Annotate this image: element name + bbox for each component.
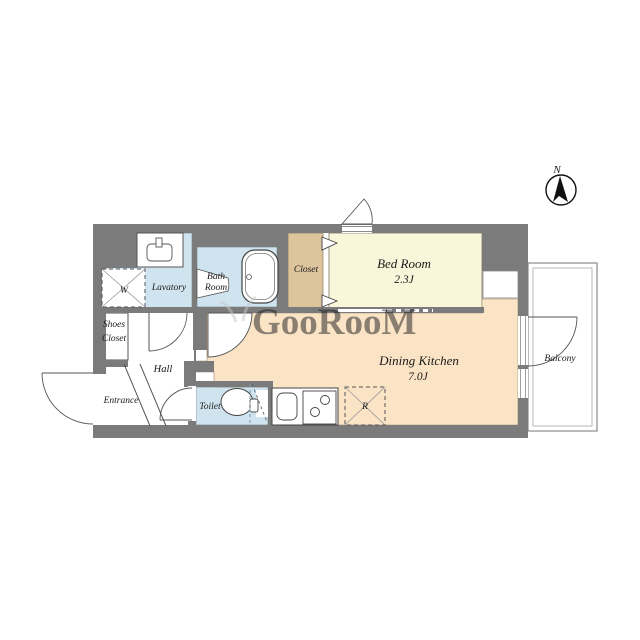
label-refrigerator: R (361, 402, 368, 412)
wall-toilet-north (184, 381, 273, 387)
compass-label: N (552, 164, 561, 176)
wall-hall-dk (193, 313, 207, 350)
wall-right-stub (518, 365, 528, 369)
wall-ne-chunk (482, 233, 528, 271)
balcony-door-opening (518, 316, 528, 365)
wall-bath-closet (277, 233, 288, 308)
toilet-tank-icon (250, 399, 258, 412)
wall-under-shoes (93, 360, 128, 367)
label-bedroom-area: 2.3J (394, 274, 414, 286)
label-lavatory: Lavatory (151, 283, 187, 293)
label-closet: Closet (294, 265, 319, 275)
toilet-bowl-icon (221, 389, 253, 416)
wall-nw-chunk (106, 233, 137, 268)
label-hall: Hall (153, 364, 173, 375)
wall-above-bath (192, 233, 287, 247)
floor-plan-drawing: N Lavatory Bath Room Closet Bed Room 2.3… (0, 0, 640, 640)
watermark-text: GooRooM (252, 302, 416, 343)
balcony (528, 263, 597, 431)
wall-step-b (196, 361, 214, 372)
label-shoes-2: Closet (102, 334, 127, 344)
label-toilet: Toilet (199, 402, 221, 412)
label-washer: W (120, 286, 129, 296)
wall-toilet-door-stub (188, 421, 196, 425)
label-bath-2: Room (204, 283, 227, 293)
balcony-outer (528, 263, 597, 431)
kitchen-sink-icon (277, 393, 297, 420)
wall-right-lower (518, 398, 528, 425)
floor-plan-page: N Lavatory Bath Room Closet Bed Room 2.3… (0, 0, 640, 640)
wall-bath-west (192, 247, 197, 308)
wall-bottom (93, 425, 528, 438)
toilet-door-opening (188, 386, 196, 421)
wall-top (93, 224, 528, 233)
alcove (483, 271, 518, 298)
burner-icon-1 (321, 396, 330, 405)
label-entrance: Entrance (103, 396, 139, 406)
tap-icon (156, 238, 162, 247)
label-bath-1: Bath (207, 272, 225, 282)
stove-icon (303, 391, 336, 424)
dk-window-opening (518, 369, 528, 398)
wall-hall-dk-thin (194, 350, 196, 361)
burner-icon-2 (311, 408, 320, 417)
label-bedroom: Bed Room (377, 256, 431, 271)
label-dk-area: 7.0J (408, 371, 428, 383)
wall-right-upper (518, 271, 528, 316)
label-dining-kitchen: Dining Kitchen (378, 353, 459, 368)
label-shoes-1: Shoes (103, 320, 125, 330)
label-balcony: Balcony (544, 354, 576, 364)
